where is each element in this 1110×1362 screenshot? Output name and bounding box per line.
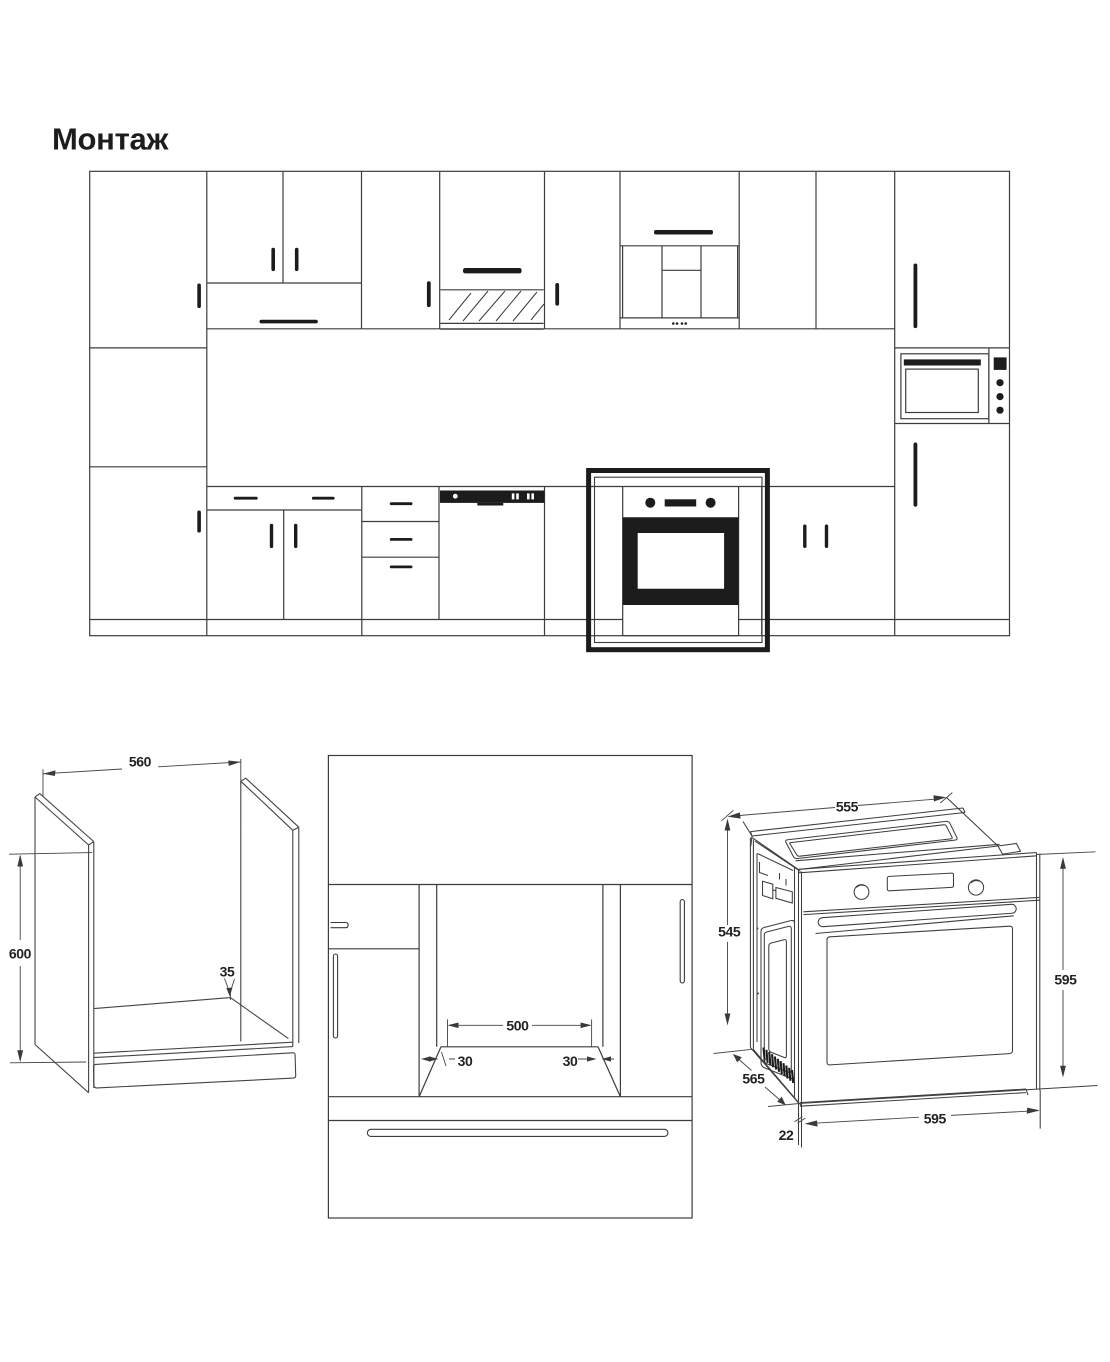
svg-text:595: 595 (1054, 972, 1077, 988)
svg-text:35: 35 (220, 964, 235, 980)
svg-text:555: 555 (836, 799, 859, 815)
svg-text:560: 560 (129, 754, 152, 770)
svg-text:595: 595 (924, 1111, 947, 1127)
svg-text:545: 545 (718, 924, 741, 940)
svg-text:500: 500 (506, 1018, 529, 1034)
svg-text:30: 30 (458, 1053, 473, 1069)
svg-text:565: 565 (742, 1071, 765, 1087)
svg-text:600: 600 (9, 946, 32, 962)
svg-text:22: 22 (779, 1127, 794, 1143)
svg-text:Монтаж: Монтаж (52, 122, 169, 157)
svg-text:30: 30 (563, 1053, 578, 1069)
